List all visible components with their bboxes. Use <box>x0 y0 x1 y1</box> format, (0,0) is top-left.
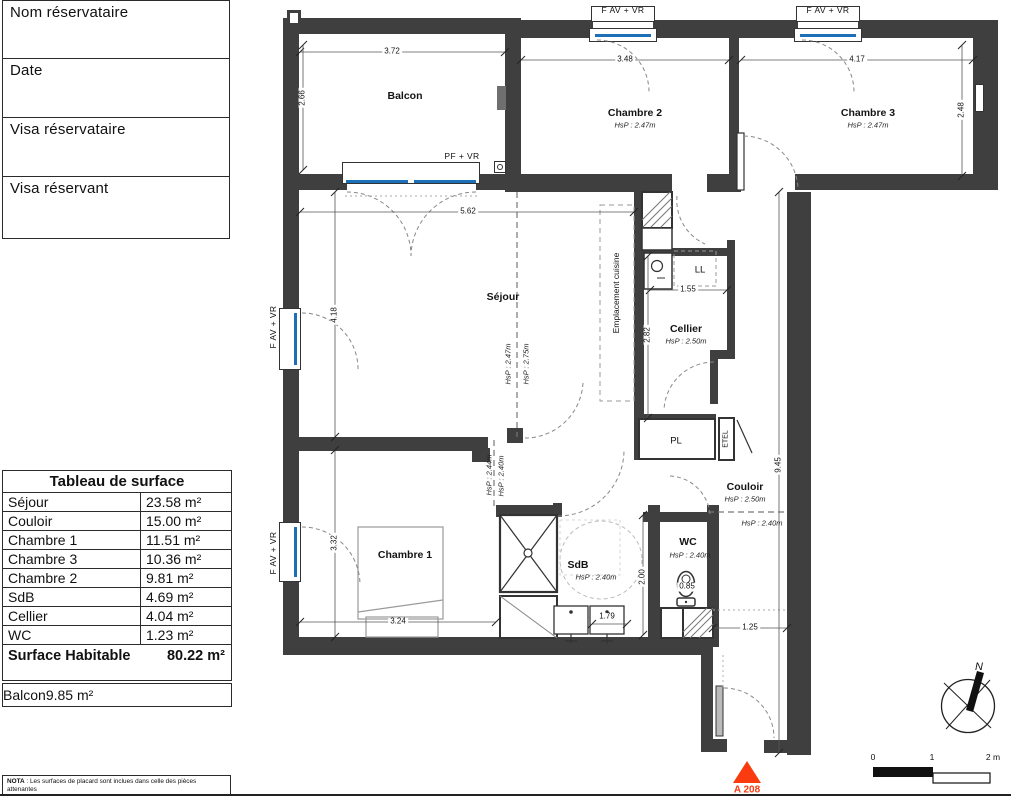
window-label-fav-vr: F AV + VR <box>602 5 645 15</box>
hsp-chambre2: HsP : 2.47m <box>615 121 656 130</box>
technical-shaft-hatch <box>642 192 672 250</box>
wc-duct-hatch <box>661 608 713 638</box>
window-label-pf-vr: PF + VR <box>444 151 479 161</box>
shower-icon <box>500 515 557 638</box>
dim-label: 3.48 <box>615 56 635 65</box>
hsp-cellier: HsP : 2.50m <box>666 337 707 346</box>
room-label-cellier: Cellier <box>670 323 702 335</box>
hsp-chambre3: HsP : 2.47m <box>848 121 889 130</box>
room-label-chambre1: Chambre 1 <box>378 549 432 561</box>
hsp-sejour-1: HsP : 2.47m <box>504 344 513 385</box>
ceiling-break-lines <box>494 192 787 512</box>
scale-bar <box>873 767 990 783</box>
floor-plan-sheet: Nom réservataire Date Visa réservataire … <box>0 0 1011 800</box>
washer-label: LL <box>695 265 706 276</box>
room-label-sdb: SdB <box>568 559 589 571</box>
unit-number-label: A 208 <box>734 785 760 796</box>
hsp-wc: HsP : 2.40m <box>670 551 711 560</box>
etel-door-line <box>737 420 752 453</box>
room-label-sejour: Séjour <box>487 291 520 303</box>
dim-label: 1.79 <box>597 613 617 622</box>
north-label: N <box>975 661 983 673</box>
dim-label: 2.48 <box>958 100 967 120</box>
hsp-couloir-1: HsP : 2.50m <box>725 495 766 504</box>
scale-label-2: 2 m <box>986 752 1000 762</box>
window-label-fav-vr: F AV + VR <box>807 5 850 15</box>
dim-label: 2.82 <box>644 325 653 345</box>
dim-label: 5.62 <box>458 208 478 217</box>
scale-label-1: 1 <box>930 752 935 762</box>
room-label-chambre2: Chambre 2 <box>608 107 662 119</box>
dim-label: 2.00 <box>639 567 648 587</box>
fixture-dot <box>498 165 503 170</box>
placard-label: PL <box>670 436 682 447</box>
hsp-sejour-2: HsP : 2.75m <box>522 344 531 385</box>
etel-label: ETEL <box>723 430 730 448</box>
room-label-balcon: Balcon <box>387 90 422 102</box>
hsp-sdb: HsP : 2.40m <box>576 573 617 582</box>
window-label-fav-vr: F AV + VR <box>268 532 278 575</box>
window-label-fav-vr: F AV + VR <box>268 306 278 349</box>
door-leaf-chambre3 <box>737 133 744 190</box>
dim-label: 2.66 <box>299 88 308 108</box>
room-label-wc: WC <box>679 536 697 548</box>
scale-label-0: 0 <box>871 752 876 762</box>
room-label-couloir: Couloir <box>727 481 764 493</box>
hsp-couloir-2: HsP : 2.40m <box>742 519 783 528</box>
dim-label: 4.17 <box>847 56 867 65</box>
hsp-door-right: HsP : 2.40m <box>497 456 506 497</box>
dim-label: 0.85 <box>677 583 697 592</box>
dim-label: 3.24 <box>388 618 408 627</box>
hsp-door-left: HsP : 2.44m <box>485 455 494 496</box>
dim-label: 4.18 <box>331 305 340 325</box>
dim-label: 3.72 <box>382 48 402 57</box>
entrance-triangle <box>733 761 761 783</box>
dim-label: 1.25 <box>740 624 760 633</box>
dimension-lines <box>296 41 977 757</box>
room-label-chambre3: Chambre 3 <box>841 107 895 119</box>
dim-label: 3.32 <box>331 533 340 553</box>
entry-door-leaf <box>716 686 723 736</box>
dim-label: 1.55 <box>678 286 698 295</box>
compass-icon <box>942 671 995 733</box>
kitchen-zone-label: Emplacement cuisine <box>611 253 621 334</box>
dim-label: 9.45 <box>775 455 784 475</box>
